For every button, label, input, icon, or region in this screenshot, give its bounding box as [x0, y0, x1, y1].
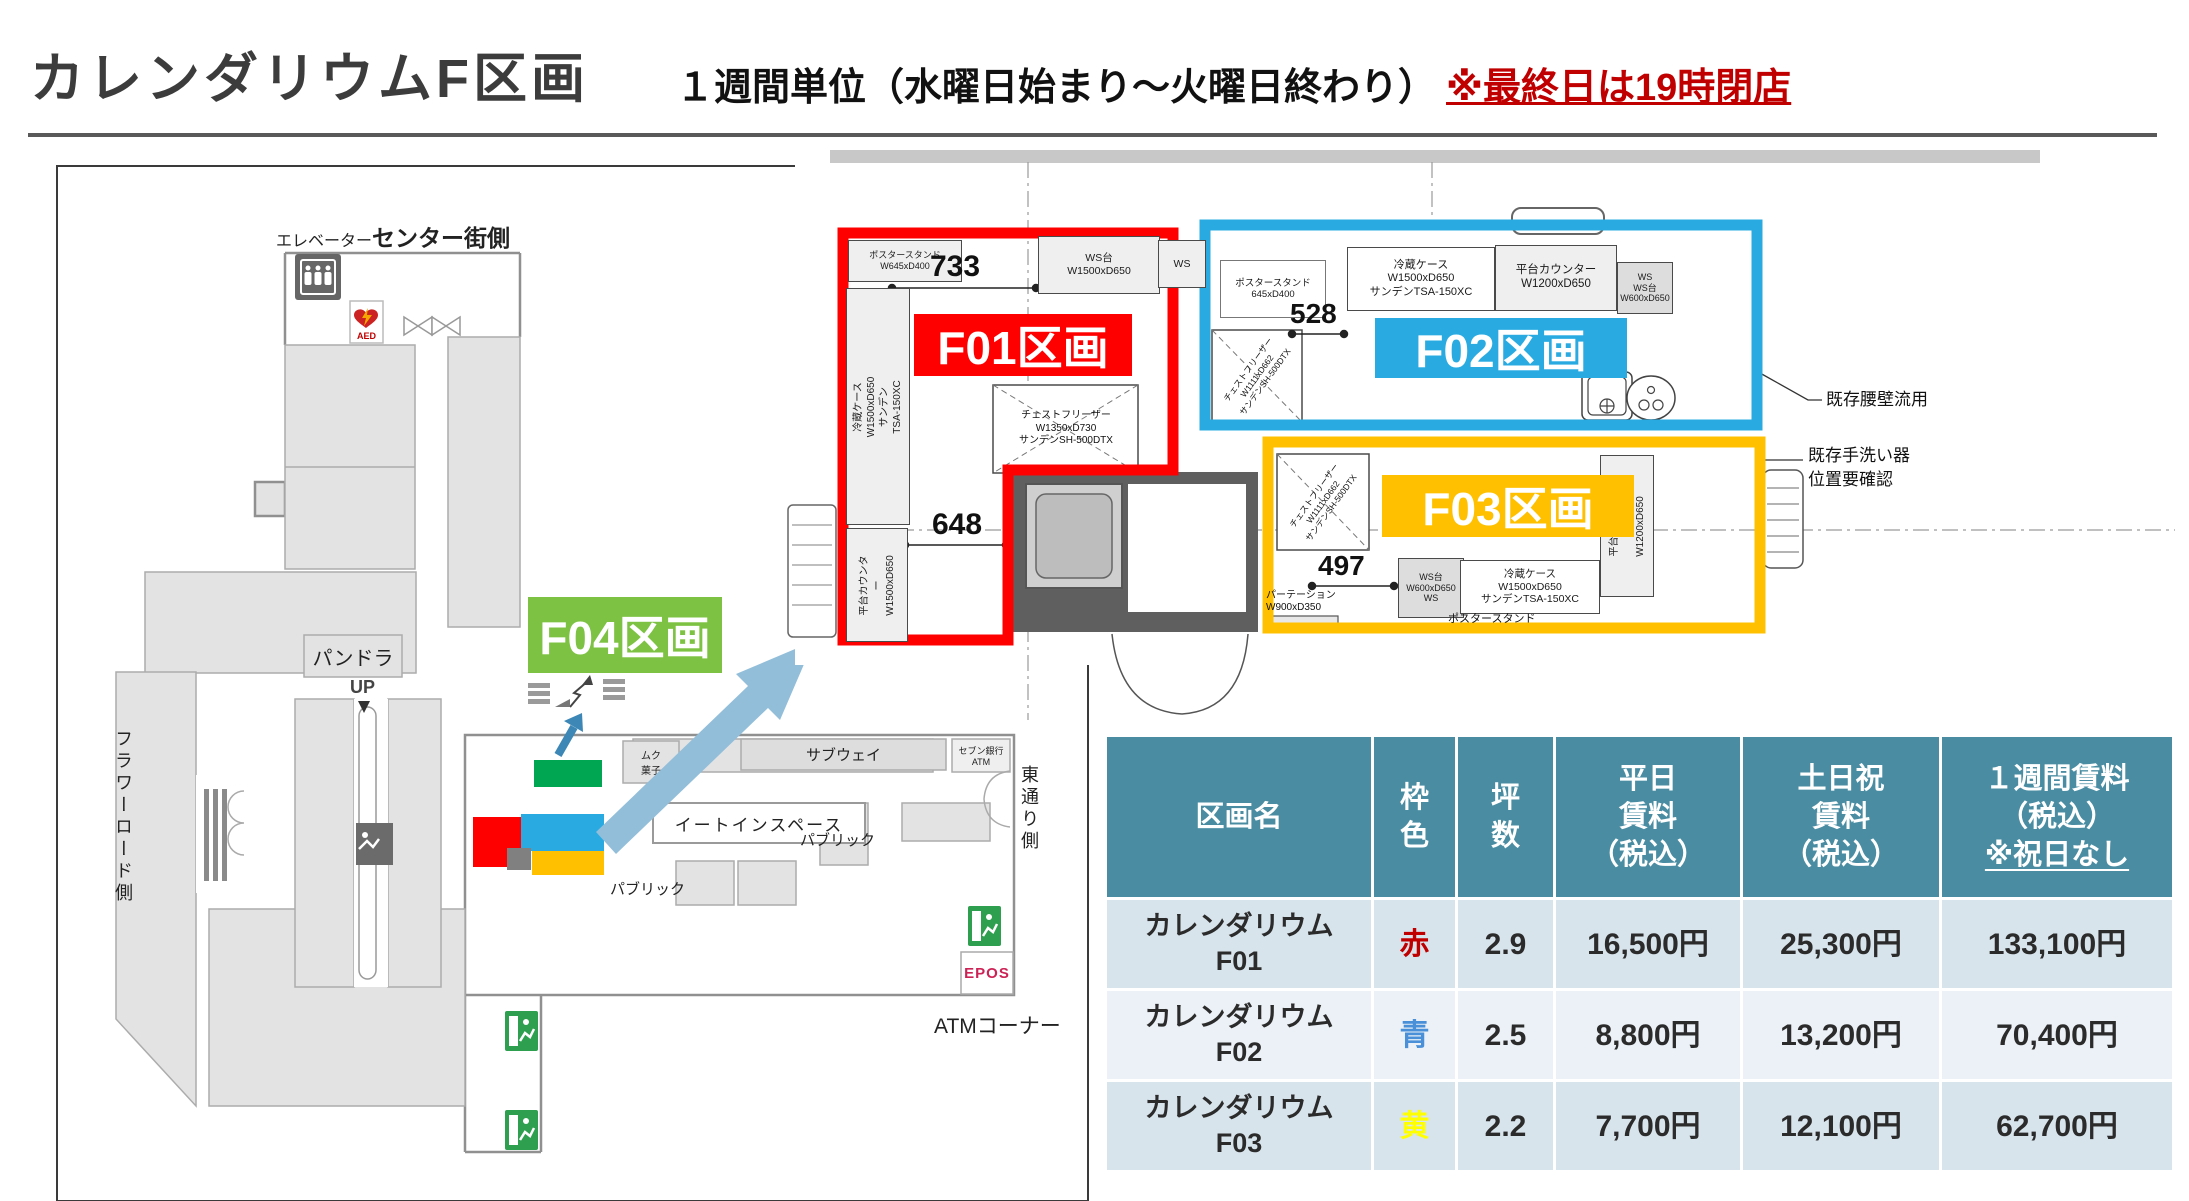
cell-week-f02: 70,400円 [1942, 991, 2172, 1079]
price-table: 区画名 枠色 坪数 平日賃料（税込） 土日祝賃料（税込） １週間賃料（税込）※祝… [1107, 737, 2157, 1170]
dim-648: 648 [932, 508, 982, 542]
col-header-weekend: 土日祝賃料（税込） [1743, 737, 1939, 897]
cell-tsubo-f01: 2.9 [1458, 900, 1553, 988]
eq-f03-ws: WS台 W600xD650 WS [1398, 558, 1464, 618]
annotation-tearai: 既存手洗い器 位置要確認 [1808, 444, 1910, 492]
annotation-koshikabe: 既存腰壁流用 [1826, 388, 1928, 412]
cell-frame-f02: 青 [1374, 991, 1455, 1079]
col-header-frame: 枠色 [1374, 737, 1455, 897]
eq-f02-reizo: 冷蔵ケース W1500xD650 サンデンTSA-150XC [1347, 247, 1495, 311]
dim-528: 528 [1290, 298, 1337, 330]
pillar [1008, 472, 1258, 714]
eq-f01-ws-dai: WS台 W1500xD650 [1038, 236, 1160, 294]
eq-f01-hiradai-text: 平台カウンター W1500xD650 [858, 555, 897, 616]
cell-tsubo-f02: 2.5 [1458, 991, 1553, 1079]
eq-f02-chest-text: チェストフリーザー W1111xD662 サンデンSH-500DTX [1221, 334, 1294, 417]
label-pandora: パンドラ [304, 635, 402, 677]
zone-chip-f01: F01区画 [914, 314, 1132, 376]
cell-name-f03: カレンダリウムF03 [1107, 1082, 1371, 1170]
zone-markers [473, 760, 604, 875]
eq-f02-ws: WS WS台 W600xD650 [1617, 262, 1673, 314]
label-flower-road: フラワーロード側 [110, 729, 136, 905]
label-center-gai: センター街側 [372, 219, 510, 253]
label-aed: AED [350, 331, 383, 341]
dim-497: 497 [1318, 550, 1365, 582]
header-divider [28, 133, 2157, 137]
marker-f02 [521, 814, 604, 851]
label-higashi-dori: 東通り側 [1016, 765, 1042, 853]
eq-f03-poster: ポスタースタンド [1448, 610, 1535, 626]
elevator-icon [295, 254, 341, 300]
eq-f02-chest: チェストフリーザー W1111xD662 サンデンSH-500DTX [1210, 332, 1304, 420]
zone-chip-f04: F04区画 [528, 597, 722, 673]
cell-frame-f01: 赤 [1374, 900, 1455, 988]
eq-f01-chest: チェストフリーザー W1350xD730 サンデンSH-500DTX [996, 392, 1136, 466]
eq-f01-ws: WS [1158, 240, 1206, 288]
epos-logo: EPOS [961, 952, 1013, 994]
col-header-tsubo: 坪数 [1458, 737, 1553, 897]
plan-base [780, 148, 2189, 748]
subtitle-note: ※最終日は19時閉店 [1446, 67, 1791, 109]
cell-frame-f03: 黄 [1374, 1082, 1455, 1170]
page-title: カレンダリウムF区画 [30, 34, 589, 113]
col-header-weekday: 平日賃料（税込） [1556, 737, 1740, 897]
label-muku: ムク 菓子 [623, 741, 679, 783]
cell-weekday-f03: 7,700円 [1556, 1082, 1740, 1170]
eq-f02-hiradai: 平台カウンター W1200xD650 [1495, 245, 1617, 311]
label-atm-corner: ATMコーナー [934, 1010, 1061, 1040]
exit-icons [505, 906, 1001, 1150]
stairs-icon [528, 675, 625, 707]
label-elevator: エレベーター [276, 227, 372, 251]
eq-f01-hiradai: 平台カウンター W1500xD650 [846, 528, 908, 642]
round-fixture [1627, 376, 1675, 420]
cell-week-f01: 133,100円 [1942, 900, 2172, 988]
label-up: UP [350, 677, 375, 698]
top-wall-strip [830, 150, 2040, 163]
detail-plan: ポスタースタンド W645xD400 WS台 W1500xD650 WS 冷蔵ケ… [780, 148, 2189, 748]
eq-f03-reizo: 冷蔵ケース W1500xD650 サンデンTSA-150XC [1460, 560, 1600, 614]
cell-name-f01: カレンダリウムF01 [1107, 900, 1371, 988]
cell-weekend-f02: 13,200円 [1743, 991, 1939, 1079]
utility-box [196, 775, 258, 893]
label-public-b: パブリック [610, 878, 685, 899]
sink [1582, 372, 1632, 420]
eq-f03-chest-text: チェストフリーザー W1111xD662 サンデンSH-500DTX [1287, 460, 1360, 543]
cell-weekend-f01: 25,300円 [1743, 900, 1939, 988]
eq-f01-reizo-text: 冷蔵ケース W1500xD650 サンデンTSA-150XC [852, 376, 904, 438]
page-subtitle: １週間単位（水曜日始まり～火曜日終わり）※最終日は19時閉店 [676, 56, 1791, 111]
eq-f03-chest: チェストフリーザー W1111xD662 サンデンSH-500DTX [1275, 456, 1371, 548]
col-header-name: 区画名 [1107, 737, 1371, 897]
subtitle-text: １週間単位（水曜日始まり～火曜日終わり） [676, 67, 1436, 109]
page: カレンダリウムF区画 １週間単位（水曜日始まり～火曜日終わり）※最終日は19時閉… [0, 0, 2189, 1201]
marker-f03 [532, 851, 604, 875]
cell-weekday-f02: 8,800円 [1556, 991, 1740, 1079]
escalator [354, 699, 393, 987]
left-bench [788, 505, 836, 637]
eq-f03-partition: パーテーション W900xD350 [1266, 590, 1336, 614]
cell-weekend-f03: 12,100円 [1743, 1082, 1939, 1170]
zone-chip-f03: F03区画 [1382, 475, 1634, 537]
cell-week-f03: 62,700円 [1942, 1082, 2172, 1170]
door-symbols [404, 317, 460, 335]
label-public-a: パブリック [800, 829, 875, 850]
dim-733: 733 [930, 250, 980, 284]
cell-name-f02: カレンダリウムF02 [1107, 991, 1371, 1079]
col-header-week: １週間賃料（税込）※祝日なし [1942, 737, 2172, 897]
zone-chip-f02: F02区画 [1375, 318, 1627, 378]
eq-f01-reizo: 冷蔵ケース W1500xD650 サンデンTSA-150XC [846, 288, 910, 525]
marker-gray [507, 848, 531, 870]
cell-tsubo-f03: 2.2 [1458, 1082, 1553, 1170]
cell-weekday-f01: 16,500円 [1556, 900, 1740, 988]
handwash-fixture [1763, 470, 1803, 568]
marker-f04 [534, 760, 602, 787]
